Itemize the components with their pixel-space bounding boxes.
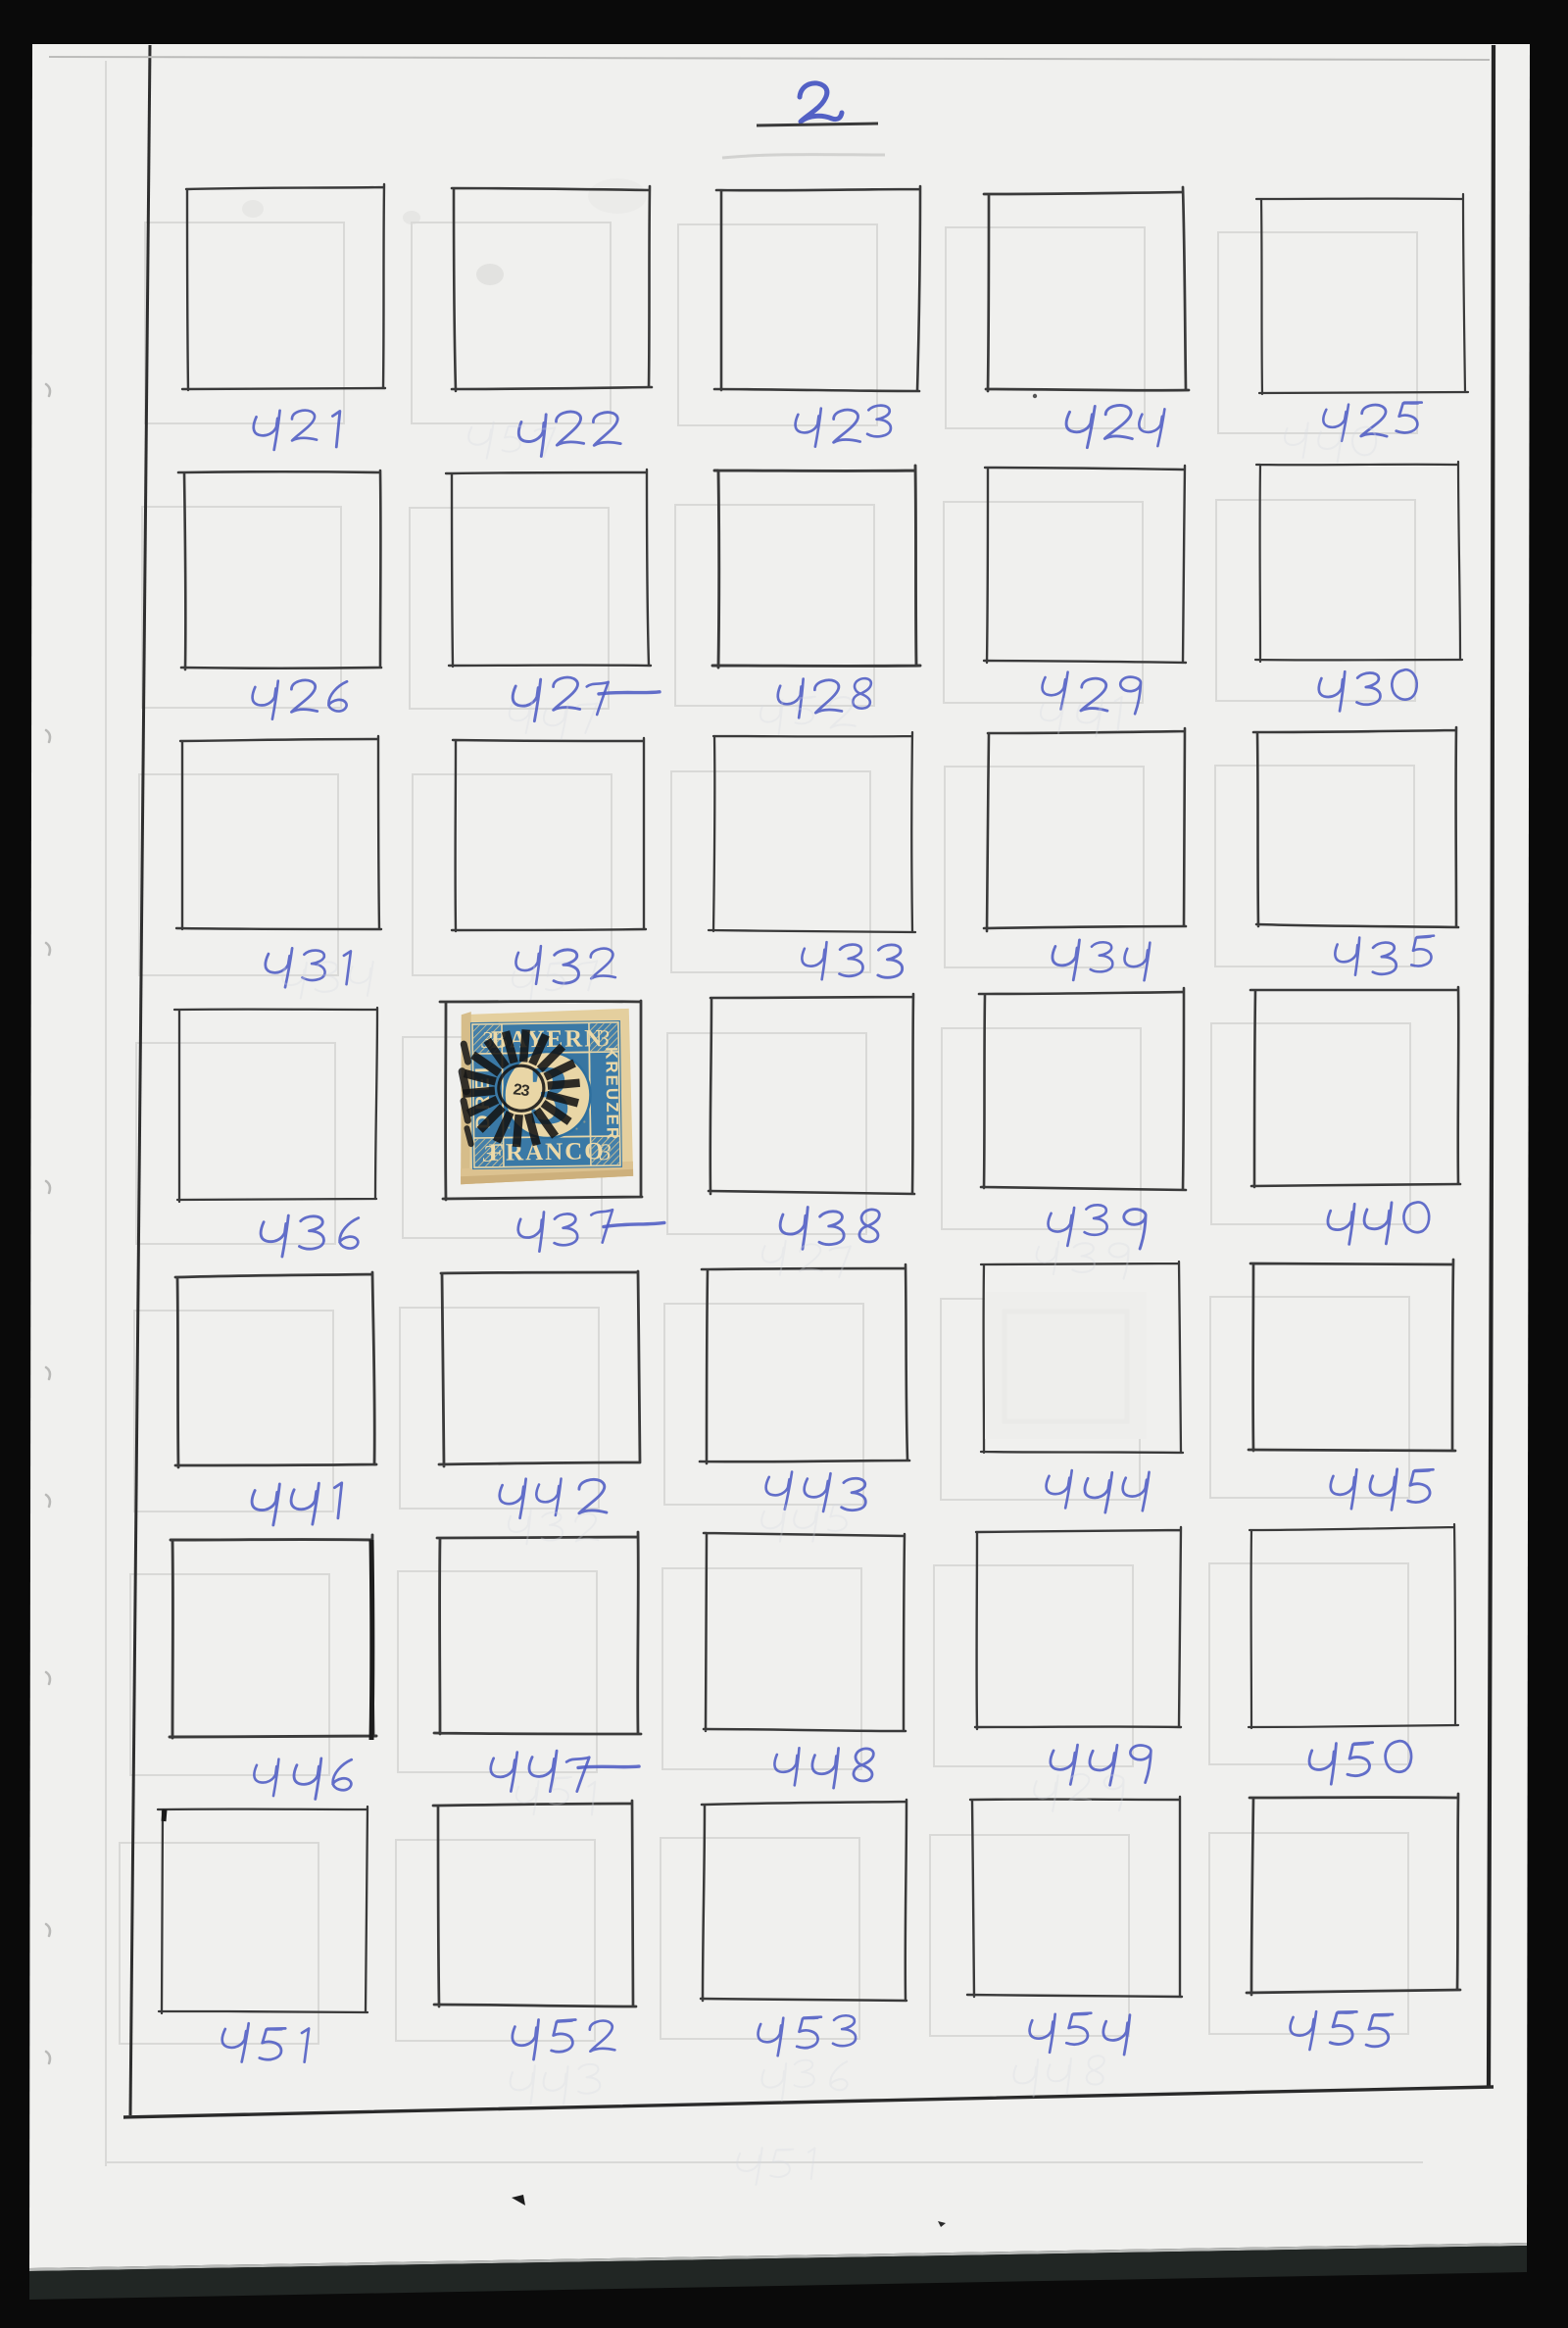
svg-text:FRANCO: FRANCO [489, 1138, 606, 1166]
svg-text:KREUZER: KREUZER [602, 1047, 621, 1141]
